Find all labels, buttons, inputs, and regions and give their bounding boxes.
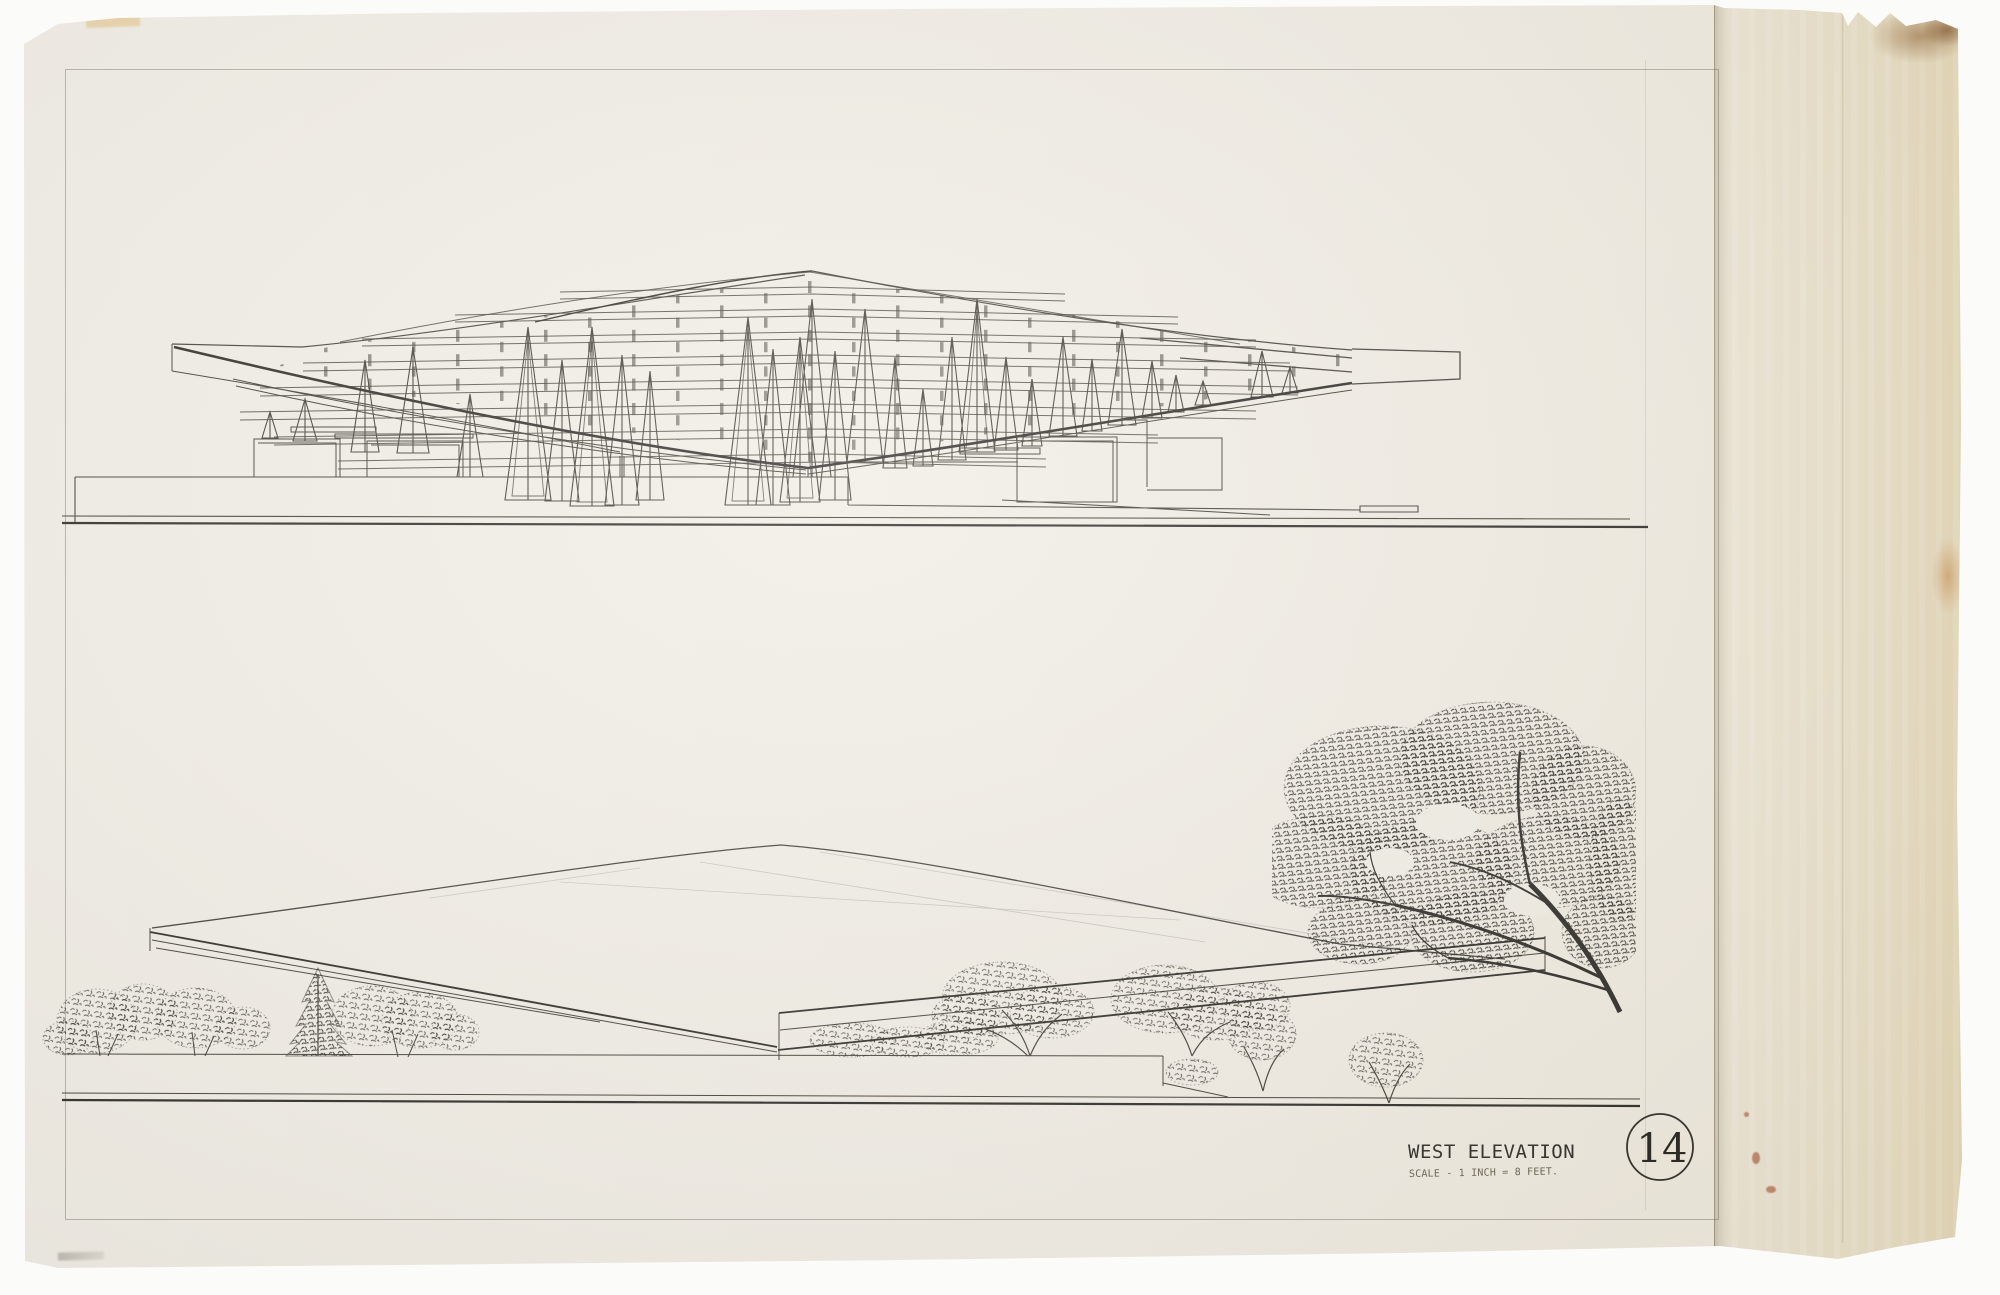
tree-canopy bbox=[1349, 1033, 1423, 1087]
wall-panels-left bbox=[254, 427, 624, 477]
red-speck bbox=[1766, 1186, 1776, 1193]
ground-line-upper bbox=[62, 523, 1648, 527]
photograph-of-drawing: WEST ELEVATION SCALE - 1 INCH = 8 FEET. … bbox=[0, 0, 2000, 1295]
canopy-gap bbox=[1416, 804, 1480, 840]
canopy-gap bbox=[1366, 848, 1414, 876]
tree-canopy bbox=[216, 1007, 270, 1049]
west-elevation-drawing bbox=[43, 702, 1650, 1106]
tree-canopy bbox=[431, 1014, 479, 1050]
garden-wall-lines bbox=[62, 1054, 1228, 1097]
red-speck bbox=[1744, 1112, 1749, 1117]
tracing-paper-sheet: WEST ELEVATION SCALE - 1 INCH = 8 FEET. … bbox=[0, 0, 2000, 1295]
tree-canopy bbox=[1308, 900, 1412, 964]
construction-lines bbox=[430, 852, 1420, 952]
red-speck bbox=[1752, 1152, 1760, 1164]
title-block: WEST ELEVATION SCALE - 1 INCH = 8 FEET. … bbox=[1408, 1114, 1693, 1180]
tree-canopy bbox=[1228, 1008, 1296, 1060]
ground-thin-line bbox=[62, 1093, 1640, 1099]
large-foreground-tree bbox=[1248, 702, 1650, 1012]
corner-brown-stain-core bbox=[1922, 14, 1972, 46]
scale-note: SCALE - 1 INCH = 8 FEET. bbox=[1409, 1166, 1558, 1180]
drawing-title: WEST ELEVATION bbox=[1408, 1141, 1575, 1163]
tape-residue-stain bbox=[86, 10, 141, 28]
tree-canopy bbox=[1590, 800, 1650, 920]
ground-line-lower bbox=[62, 1100, 1640, 1106]
tree-canopy bbox=[43, 1021, 93, 1055]
tree-canopy bbox=[1010, 986, 1094, 1038]
sheet-number: 14 bbox=[1637, 1126, 1688, 1172]
shrub bbox=[1166, 1059, 1218, 1085]
elevation-drawings: WEST ELEVATION SCALE - 1 INCH = 8 FEET. … bbox=[0, 0, 2000, 1295]
tree-canopy bbox=[932, 994, 1000, 1038]
faint-pencil-inscription bbox=[58, 1251, 104, 1260]
edge-orange-stain bbox=[1932, 538, 1964, 614]
roof-structure-elevation bbox=[62, 271, 1648, 527]
